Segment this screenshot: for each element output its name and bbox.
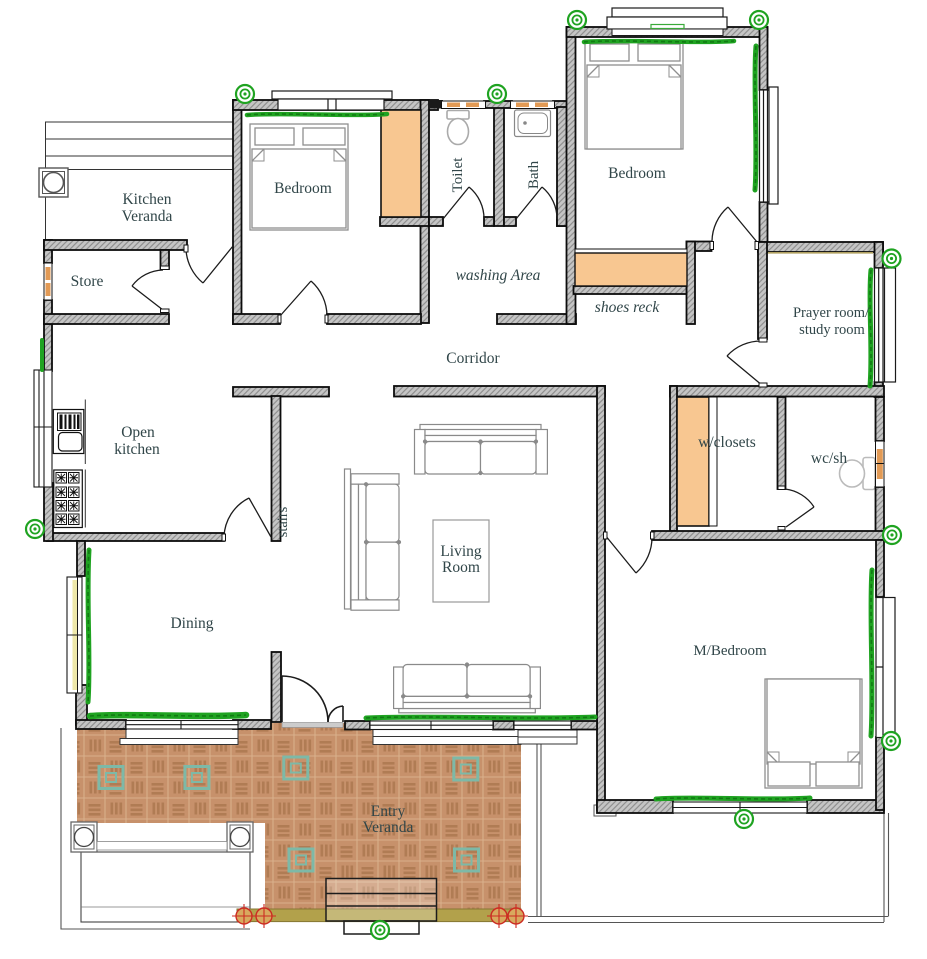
svg-text:Bath: Bath (526, 160, 542, 189)
svg-text:Room: Room (442, 559, 480, 576)
svg-text:Kitchen: Kitchen (122, 191, 171, 208)
svg-text:Living: Living (440, 543, 482, 560)
svg-text:Store: Store (71, 273, 104, 290)
svg-text:M/Bedroom: M/Bedroom (693, 643, 767, 659)
svg-text:Veranda: Veranda (122, 208, 173, 225)
svg-text:Veranda: Veranda (363, 819, 414, 836)
svg-text:Bedroom: Bedroom (274, 180, 332, 197)
svg-text:study room: study room (799, 322, 865, 338)
svg-text:Entry: Entry (371, 803, 406, 820)
svg-text:washing Area: washing Area (456, 267, 541, 284)
svg-text:shoes reck: shoes reck (595, 299, 661, 316)
svg-text:Dining: Dining (170, 615, 213, 632)
svg-text:w/closets: w/closets (698, 434, 756, 451)
svg-text:wc/sh: wc/sh (811, 450, 847, 467)
svg-text:kitchen: kitchen (114, 441, 160, 458)
svg-text:stairs: stairs (275, 506, 291, 537)
svg-text:Toilet: Toilet (450, 157, 466, 193)
svg-text:Corridor: Corridor (446, 350, 500, 367)
svg-text:Bedroom: Bedroom (608, 165, 666, 182)
svg-text:Prayer room/: Prayer room/ (793, 305, 870, 321)
svg-text:Open: Open (121, 424, 155, 441)
